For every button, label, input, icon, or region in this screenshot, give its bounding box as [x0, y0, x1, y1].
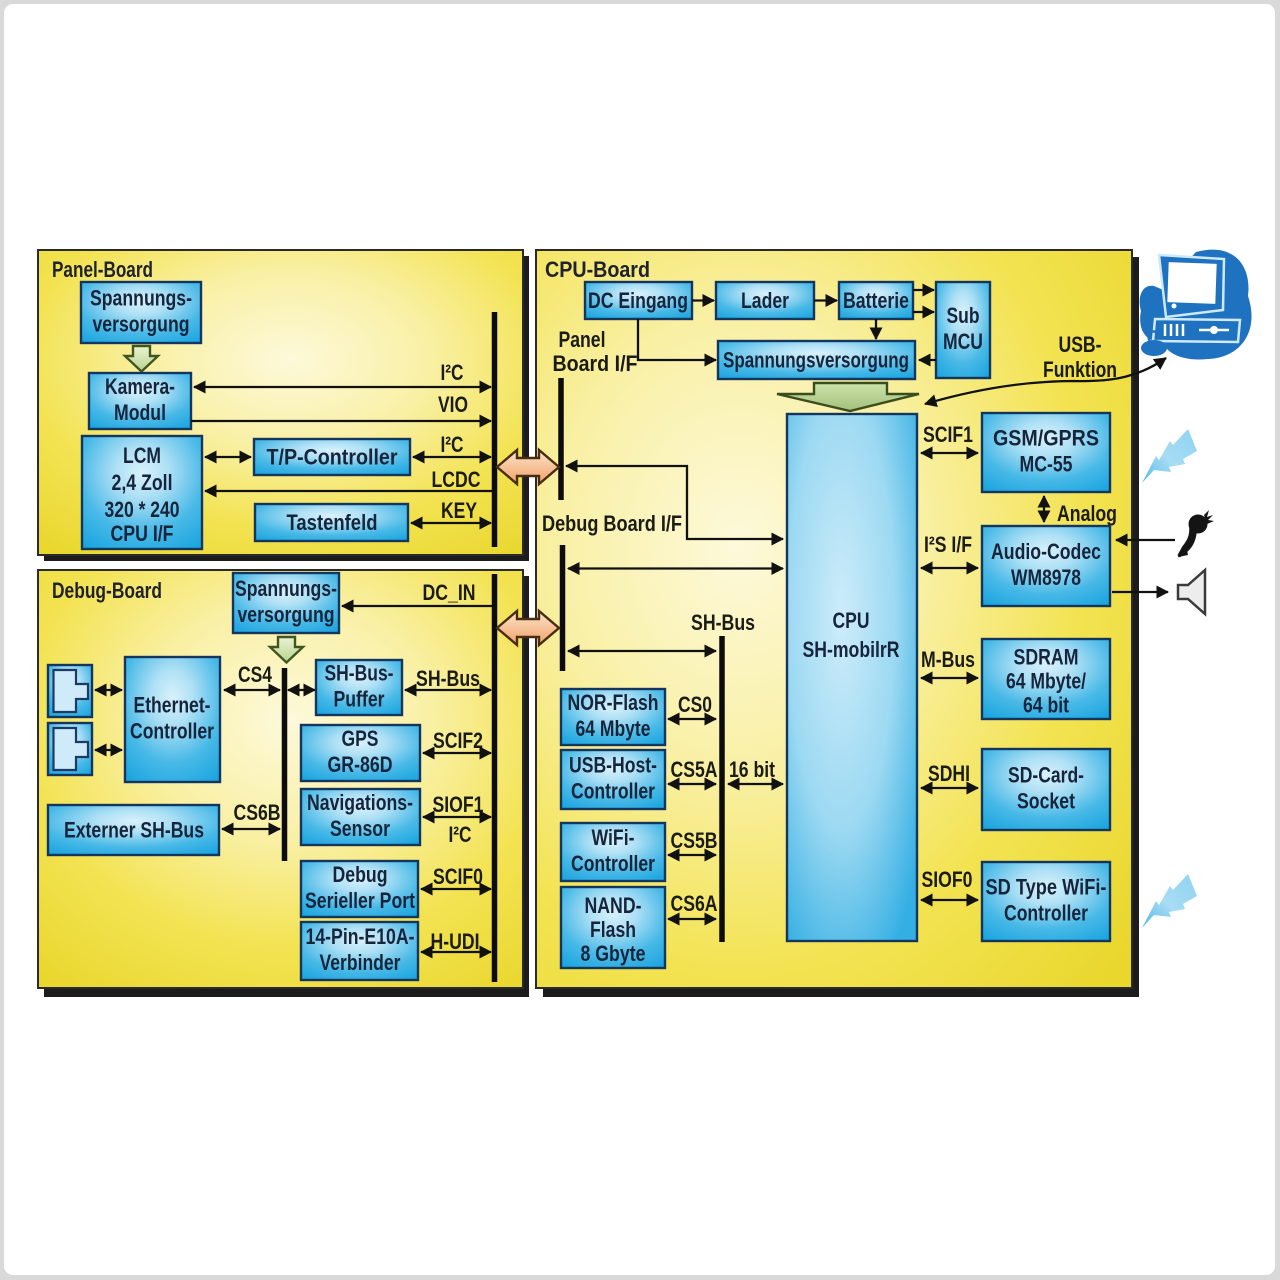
- svg-text:Sensor: Sensor: [330, 816, 390, 841]
- svg-text:DC Eingang: DC Eingang: [588, 288, 688, 313]
- svg-text:Debug Board I/F: Debug Board I/F: [542, 511, 682, 536]
- svg-text:SH-mobilrR: SH-mobilrR: [803, 637, 900, 662]
- svg-text:SDRAM: SDRAM: [1014, 645, 1079, 670]
- svg-text:WiFi-: WiFi-: [592, 825, 635, 850]
- svg-text:Kamera-: Kamera-: [105, 374, 175, 399]
- svg-text:USB-Host-: USB-Host-: [569, 753, 657, 778]
- svg-text:LCDC: LCDC: [432, 467, 481, 492]
- svg-text:Audio-Codec: Audio-Codec: [991, 539, 1101, 564]
- svg-text:T/P-Controller: T/P-Controller: [267, 445, 398, 470]
- svg-text:64 Mbyte/: 64 Mbyte/: [1006, 669, 1086, 694]
- svg-text:Board I/F: Board I/F: [553, 351, 638, 376]
- svg-text:2,4 Zoll: 2,4 Zoll: [112, 470, 173, 495]
- svg-text:MC-55: MC-55: [1020, 452, 1073, 477]
- svg-text:versorgung: versorgung: [93, 312, 190, 337]
- svg-text:Socket: Socket: [1017, 789, 1076, 814]
- svg-text:320 * 240: 320 * 240: [105, 497, 180, 522]
- svg-text:USB-: USB-: [1059, 332, 1102, 357]
- svg-text:Externer SH-Bus: Externer SH-Bus: [64, 818, 204, 843]
- svg-text:I²C: I²C: [441, 432, 464, 457]
- svg-text:SH-Bus: SH-Bus: [416, 666, 480, 691]
- svg-text:H-UDI: H-UDI: [431, 929, 480, 954]
- svg-text:16 bit: 16 bit: [729, 757, 776, 782]
- svg-text:Modul: Modul: [114, 400, 166, 425]
- svg-text:Panel: Panel: [559, 327, 606, 352]
- svg-text:Puffer: Puffer: [334, 687, 385, 712]
- svg-text:Ethernet-: Ethernet-: [134, 693, 211, 718]
- svg-text:64 bit: 64 bit: [1023, 693, 1070, 718]
- svg-text:VIO: VIO: [438, 392, 468, 417]
- svg-text:CS4: CS4: [238, 662, 273, 687]
- svg-text:Lader: Lader: [741, 288, 789, 313]
- svg-text:SCIF2: SCIF2: [433, 728, 483, 753]
- svg-text:Controller: Controller: [130, 719, 214, 744]
- svg-text:Panel-Board: Panel-Board: [52, 257, 153, 282]
- svg-text:CS6A: CS6A: [671, 891, 718, 916]
- svg-text:NOR-Flash: NOR-Flash: [568, 690, 659, 715]
- svg-text:Spannungsversorgung: Spannungsversorgung: [723, 348, 909, 373]
- svg-text:Controller: Controller: [571, 851, 655, 876]
- svg-text:Verbinder: Verbinder: [320, 950, 401, 975]
- svg-text:SH-Bus: SH-Bus: [691, 610, 755, 635]
- svg-text:Controller: Controller: [571, 779, 655, 804]
- svg-text:GPS: GPS: [342, 726, 379, 751]
- svg-text:Spannungs-: Spannungs-: [90, 286, 192, 311]
- svg-text:I²C: I²C: [441, 360, 464, 385]
- svg-text:CS5A: CS5A: [671, 757, 718, 782]
- svg-text:Spannungs-: Spannungs-: [235, 576, 337, 601]
- svg-text:Sub: Sub: [947, 303, 980, 328]
- svg-text:NAND-: NAND-: [585, 893, 642, 918]
- svg-text:Serieller Port: Serieller Port: [305, 888, 416, 913]
- svg-text:CPU: CPU: [833, 608, 870, 633]
- svg-text:I²S I/F: I²S I/F: [924, 532, 972, 557]
- svg-text:SD-Card-: SD-Card-: [1008, 763, 1084, 788]
- svg-text:Funktion: Funktion: [1043, 357, 1117, 382]
- svg-text:Analog: Analog: [1057, 501, 1117, 526]
- svg-text:SIOF0: SIOF0: [922, 867, 973, 892]
- svg-text:Debug: Debug: [333, 862, 388, 887]
- svg-text:GR-86D: GR-86D: [328, 752, 393, 777]
- svg-text:Controller: Controller: [1004, 901, 1088, 926]
- svg-text:SCIF1: SCIF1: [923, 422, 973, 447]
- svg-text:Flash: Flash: [590, 917, 636, 942]
- svg-text:SH-Bus-: SH-Bus-: [325, 661, 394, 686]
- svg-text:GSM/GPRS: GSM/GPRS: [993, 426, 1099, 451]
- svg-text:14-Pin-E10A-: 14-Pin-E10A-: [306, 924, 415, 949]
- svg-text:CPU I/F: CPU I/F: [111, 521, 174, 546]
- svg-text:Debug-Board: Debug-Board: [52, 578, 162, 603]
- svg-text:CPU-Board: CPU-Board: [545, 257, 650, 282]
- svg-text:SCIF0: SCIF0: [433, 864, 483, 889]
- svg-text:Tastenfeld: Tastenfeld: [287, 510, 378, 535]
- svg-text:LCM: LCM: [123, 443, 161, 468]
- svg-text:CS6B: CS6B: [234, 800, 281, 825]
- svg-text:Navigations-: Navigations-: [307, 790, 413, 815]
- svg-text:SIOF1: SIOF1: [433, 792, 484, 817]
- svg-text:SDHI: SDHI: [928, 761, 970, 786]
- svg-text:WM8978: WM8978: [1011, 565, 1081, 590]
- svg-text:Batterie: Batterie: [843, 288, 909, 313]
- svg-text:CS0: CS0: [678, 692, 712, 717]
- svg-text:8 Gbyte: 8 Gbyte: [581, 941, 646, 966]
- svg-text:64 Mbyte: 64 Mbyte: [576, 716, 651, 741]
- svg-text:KEY: KEY: [441, 498, 477, 523]
- svg-text:M-Bus: M-Bus: [921, 647, 975, 672]
- svg-text:DC_IN: DC_IN: [423, 580, 476, 605]
- svg-text:CS5B: CS5B: [671, 828, 718, 853]
- svg-text:MCU: MCU: [943, 329, 983, 354]
- svg-text:SD Type WiFi-: SD Type WiFi-: [986, 875, 1107, 900]
- svg-text:I²C: I²C: [449, 822, 472, 847]
- svg-text:versorgung: versorgung: [238, 602, 335, 627]
